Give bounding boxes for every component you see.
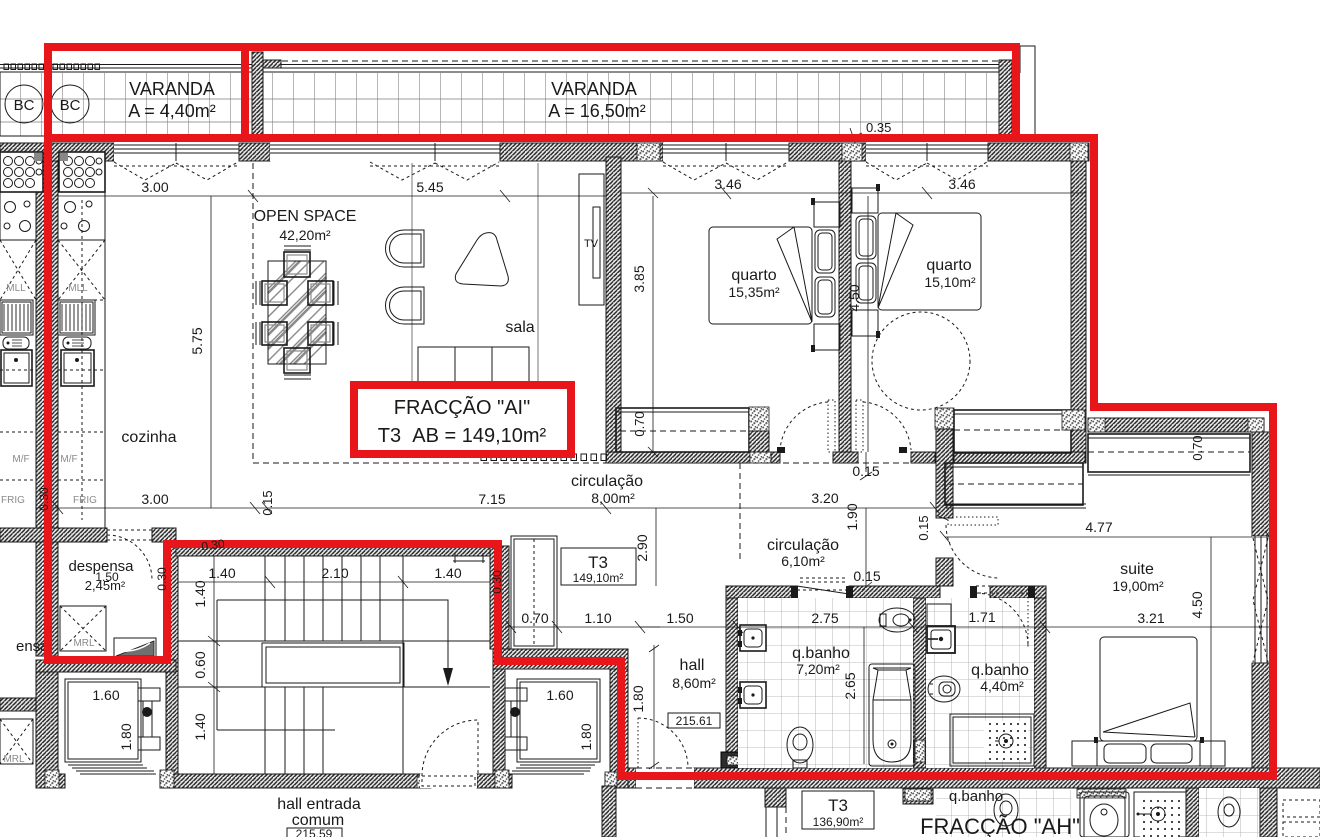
- svg-text:1.71: 1.71: [968, 609, 995, 625]
- svg-text:4.50: 4.50: [1189, 591, 1205, 618]
- svg-text:0.70: 0.70: [632, 411, 647, 436]
- svg-text:3.21: 3.21: [1137, 610, 1164, 626]
- svg-text:1.50: 1.50: [95, 570, 119, 584]
- svg-text:A = 4,40m²: A = 4,40m²: [128, 101, 216, 121]
- svg-text:2.90: 2.90: [634, 534, 650, 561]
- svg-text:3.00: 3.00: [141, 179, 168, 195]
- svg-text:149,10m²: 149,10m²: [573, 571, 624, 585]
- svg-text:quarto: quarto: [926, 257, 971, 274]
- svg-text:1.60: 1.60: [92, 687, 119, 703]
- svg-text:3.46: 3.46: [948, 176, 975, 192]
- svg-text:19,00m²: 19,00m²: [1112, 578, 1164, 594]
- svg-text:0.35: 0.35: [866, 120, 891, 135]
- svg-text:q.banho: q.banho: [971, 662, 1029, 679]
- svg-text:0.60: 0.60: [192, 651, 208, 678]
- svg-text:circulação: circulação: [571, 473, 643, 490]
- svg-text:1.40: 1.40: [208, 565, 235, 581]
- svg-text:MLL: MLL: [6, 283, 26, 294]
- svg-text:2.10: 2.10: [321, 565, 348, 581]
- svg-text:0.15: 0.15: [260, 490, 275, 515]
- svg-text:1.90: 1.90: [844, 503, 860, 530]
- svg-text:hall: hall: [680, 657, 705, 674]
- svg-text:215.61: 215.61: [676, 714, 713, 728]
- svg-text:1.80: 1.80: [578, 723, 594, 750]
- svg-text:3.20: 3.20: [811, 490, 838, 506]
- svg-text:0.30: 0.30: [37, 487, 51, 511]
- svg-text:1.10: 1.10: [584, 610, 611, 626]
- svg-text:sala: sala: [505, 319, 534, 336]
- svg-text:MRL: MRL: [3, 754, 25, 765]
- svg-text:1.60: 1.60: [546, 687, 573, 703]
- svg-text:suite: suite: [1120, 561, 1154, 578]
- svg-text:1.50: 1.50: [666, 610, 693, 626]
- svg-text:T3: T3: [828, 796, 848, 815]
- svg-text:7.15: 7.15: [478, 491, 505, 507]
- svg-text:4.50: 4.50: [846, 284, 862, 311]
- svg-text:TV: TV: [584, 238, 599, 250]
- svg-text:FRIG: FRIG: [73, 495, 97, 506]
- svg-text:VARANDA: VARANDA: [129, 79, 215, 99]
- svg-text:5.75: 5.75: [189, 327, 205, 354]
- svg-text:MLL: MLL: [68, 283, 88, 294]
- svg-text:4.77: 4.77: [1085, 519, 1112, 535]
- svg-text:OPEN SPACE: OPEN SPACE: [254, 208, 357, 225]
- svg-text:0.30: 0.30: [490, 570, 504, 594]
- svg-text:8,60m²: 8,60m²: [672, 675, 716, 691]
- svg-text:0.30: 0.30: [155, 567, 169, 591]
- svg-text:M/F: M/F: [60, 454, 77, 465]
- svg-text:0.15: 0.15: [853, 568, 880, 584]
- svg-text:0.70: 0.70: [1190, 435, 1205, 460]
- svg-text:8,00m²: 8,00m²: [591, 490, 635, 506]
- svg-text:15,10m²: 15,10m²: [924, 274, 976, 290]
- svg-text:FRACÇÃO "AH": FRACÇÃO "AH": [920, 814, 1080, 837]
- svg-text:hall entrada: hall entrada: [277, 796, 361, 813]
- svg-text:cozinha: cozinha: [121, 429, 176, 446]
- svg-text:FRACÇÃO "AI": FRACÇÃO "AI": [394, 395, 530, 419]
- svg-text:42,20m²: 42,20m²: [279, 227, 331, 243]
- svg-text:3.00: 3.00: [141, 491, 168, 507]
- svg-text:0.15: 0.15: [916, 515, 931, 540]
- svg-text:BC: BC: [14, 97, 35, 114]
- svg-text:1.40: 1.40: [192, 713, 208, 740]
- svg-text:1.80: 1.80: [630, 685, 646, 712]
- svg-text:136,90m²: 136,90m²: [813, 815, 864, 829]
- svg-text:2.65: 2.65: [842, 672, 858, 699]
- svg-text:circulação: circulação: [767, 537, 839, 554]
- svg-text:q.banho: q.banho: [792, 645, 850, 662]
- svg-text:1.40: 1.40: [192, 580, 208, 607]
- svg-text:15,35m²: 15,35m²: [728, 284, 780, 300]
- svg-text:6,10m²: 6,10m²: [781, 553, 825, 569]
- svg-text:T3 AB = 149,10m²: T3 AB = 149,10m²: [378, 425, 547, 447]
- svg-text:0.70: 0.70: [521, 610, 548, 626]
- svg-text:M/F: M/F: [12, 454, 29, 465]
- svg-text:3.85: 3.85: [631, 265, 647, 292]
- svg-text:4,40m²: 4,40m²: [980, 678, 1024, 694]
- svg-text:3.46: 3.46: [714, 176, 741, 192]
- svg-text:FRIG: FRIG: [1, 495, 25, 506]
- svg-text:1.40: 1.40: [434, 565, 461, 581]
- svg-text:T3: T3: [588, 553, 608, 572]
- svg-text:1.80: 1.80: [118, 723, 134, 750]
- svg-text:7,20m²: 7,20m²: [796, 661, 840, 677]
- svg-text:quarto: quarto: [731, 267, 776, 284]
- svg-text:2.75: 2.75: [811, 610, 838, 626]
- svg-text:VARANDA: VARANDA: [551, 79, 637, 99]
- svg-text:5.45: 5.45: [416, 179, 443, 195]
- svg-text:BC: BC: [60, 97, 81, 114]
- svg-text:215.59: 215.59: [296, 827, 333, 837]
- svg-text:A = 16,50m²: A = 16,50m²: [548, 101, 646, 121]
- svg-text:MRL: MRL: [73, 638, 95, 649]
